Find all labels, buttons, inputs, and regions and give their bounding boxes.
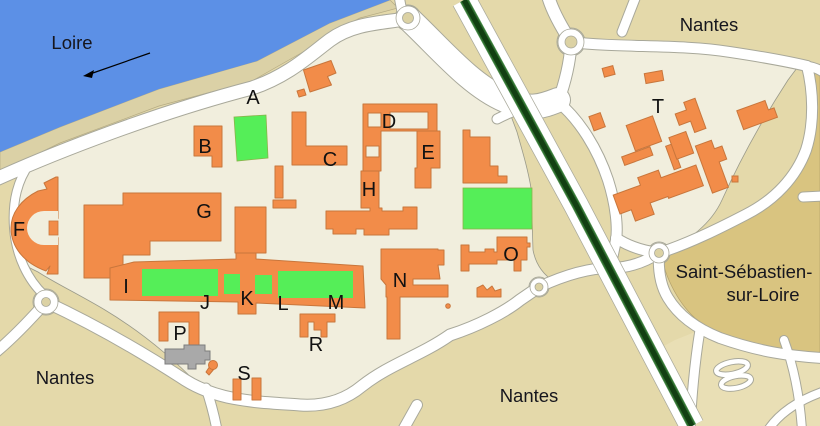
svg-text:T: T	[652, 96, 664, 118]
svg-text:G: G	[196, 201, 212, 223]
svg-text:L: L	[277, 293, 288, 315]
svg-text:Saint-Sébastien-: Saint-Sébastien-	[676, 261, 813, 282]
svg-text:M: M	[328, 292, 345, 314]
svg-text:P: P	[173, 323, 186, 345]
svg-text:E: E	[421, 142, 434, 164]
svg-text:Nantes: Nantes	[36, 367, 95, 388]
svg-text:B: B	[198, 136, 211, 158]
svg-text:Loire: Loire	[51, 32, 92, 53]
svg-text:O: O	[503, 244, 519, 266]
svg-text:K: K	[240, 288, 254, 310]
svg-text:Nantes: Nantes	[680, 14, 739, 35]
svg-text:sur-Loire: sur-Loire	[727, 284, 800, 305]
svg-text:H: H	[362, 179, 376, 201]
svg-text:I: I	[123, 276, 129, 298]
svg-text:D: D	[382, 111, 396, 133]
svg-text:F: F	[13, 219, 25, 241]
svg-text:N: N	[393, 270, 407, 292]
svg-text:S: S	[237, 363, 250, 385]
svg-text:A: A	[246, 87, 260, 109]
svg-text:C: C	[323, 149, 337, 171]
svg-text:Nantes: Nantes	[500, 385, 559, 406]
svg-text:R: R	[309, 334, 323, 356]
svg-text:J: J	[200, 292, 210, 314]
